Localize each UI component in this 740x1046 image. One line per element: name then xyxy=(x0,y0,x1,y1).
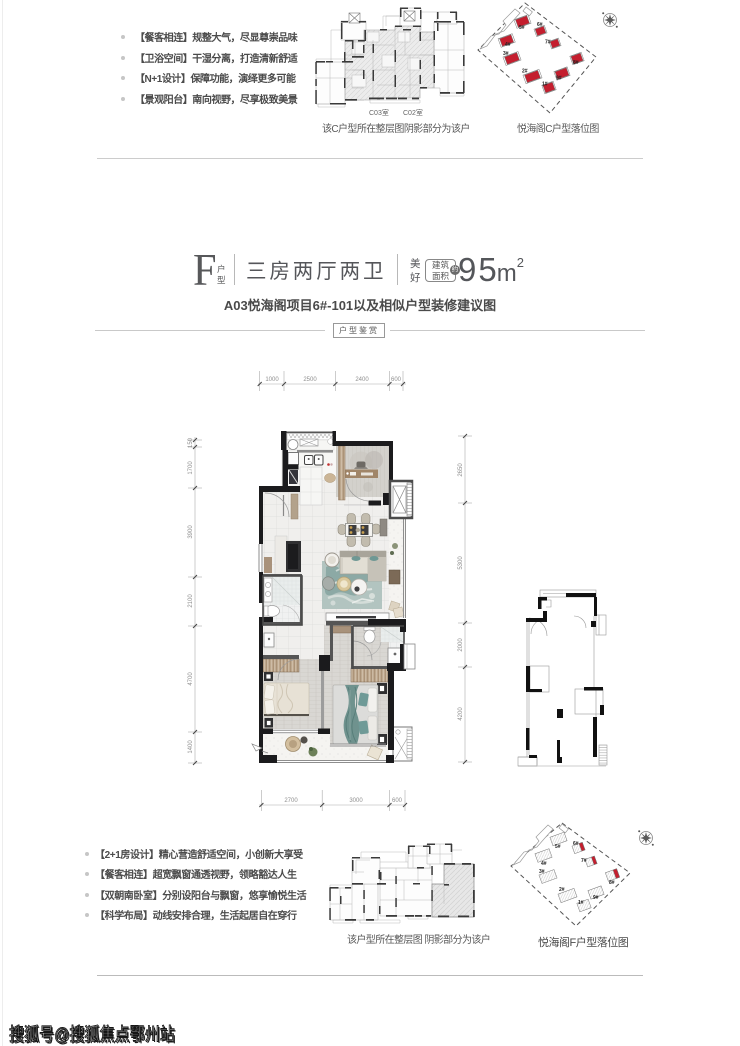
svg-text:2100: 2100 xyxy=(188,594,194,608)
svg-text:3#: 3# xyxy=(539,869,545,875)
svg-text:9#: 9# xyxy=(593,895,599,901)
svg-text:1700: 1700 xyxy=(188,461,194,475)
svg-text:9#: 9# xyxy=(556,76,562,82)
svg-text:7#: 7# xyxy=(545,40,551,46)
svg-text:2400: 2400 xyxy=(355,377,369,383)
svg-text:2#: 2# xyxy=(559,887,565,893)
svg-text:2500: 2500 xyxy=(303,377,317,383)
svg-text:2#: 2# xyxy=(522,69,528,75)
svg-text:6#: 6# xyxy=(573,841,579,847)
svg-text:4700: 4700 xyxy=(188,672,194,686)
svg-text:6#: 6# xyxy=(537,22,543,28)
svg-text:3#: 3# xyxy=(503,51,509,57)
svg-text:1400: 1400 xyxy=(188,740,194,754)
svg-text:2650: 2650 xyxy=(458,463,464,477)
svg-text:4200: 4200 xyxy=(458,707,464,721)
svg-text:1#: 1# xyxy=(578,900,584,906)
svg-text:150: 150 xyxy=(188,437,194,448)
svg-text:8#: 8# xyxy=(609,880,615,886)
svg-text:1#: 1# xyxy=(542,82,548,88)
svg-text:4#: 4# xyxy=(541,861,547,867)
svg-text:7#: 7# xyxy=(581,858,587,864)
svg-text:8#: 8# xyxy=(573,60,579,66)
svg-text:3900: 3900 xyxy=(188,525,194,539)
svg-text:600: 600 xyxy=(392,798,403,804)
svg-text:2000: 2000 xyxy=(458,638,464,652)
svg-text:5300: 5300 xyxy=(458,556,464,570)
svg-text:600: 600 xyxy=(391,377,402,383)
svg-text:5#: 5# xyxy=(519,25,525,31)
svg-text:5#: 5# xyxy=(555,844,561,850)
svg-text:4#: 4# xyxy=(505,42,511,48)
svg-text:3000: 3000 xyxy=(349,798,363,804)
svg-text:2700: 2700 xyxy=(284,798,298,804)
svg-text:1000: 1000 xyxy=(265,377,279,383)
